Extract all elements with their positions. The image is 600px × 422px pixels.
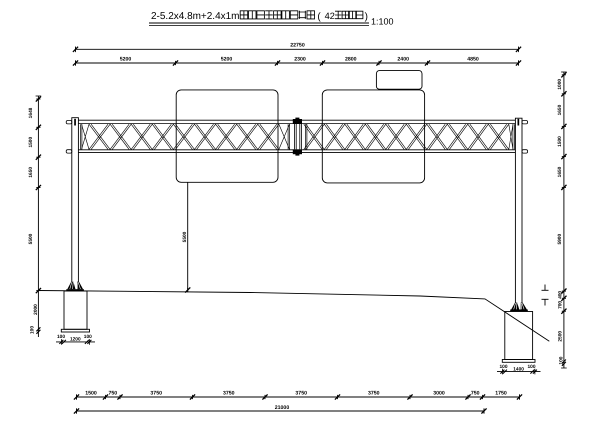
- svg-text:1400: 1400: [513, 366, 524, 372]
- svg-text:2-5.2x4.8m+2.4x1m: 2-5.2x4.8m+2.4x1m: [151, 11, 240, 22]
- svg-text:100: 100: [57, 334, 65, 340]
- svg-text:100: 100: [30, 326, 36, 334]
- svg-text:3750: 3750: [295, 391, 307, 397]
- svg-text:21000: 21000: [275, 405, 290, 411]
- svg-text:5500: 5500: [182, 231, 188, 242]
- svg-text:2500: 2500: [558, 331, 564, 342]
- svg-text:): ): [365, 11, 368, 22]
- svg-text:3750: 3750: [150, 391, 162, 397]
- svg-text:1650: 1650: [557, 104, 563, 115]
- svg-text:3000: 3000: [433, 391, 445, 397]
- svg-text:100: 100: [559, 356, 565, 364]
- svg-text:4850: 4850: [467, 57, 479, 63]
- svg-text:1500: 1500: [85, 391, 97, 397]
- svg-text:400: 400: [558, 291, 564, 299]
- svg-text:3750: 3750: [368, 391, 380, 397]
- svg-text:1648: 1648: [28, 107, 34, 118]
- svg-text:42: 42: [325, 11, 335, 21]
- svg-text:2000: 2000: [33, 304, 39, 315]
- svg-text:1500: 1500: [28, 137, 34, 148]
- svg-text:100: 100: [84, 334, 92, 340]
- svg-text:5200: 5200: [120, 57, 132, 63]
- svg-text:1750: 1750: [495, 391, 507, 397]
- svg-text:5500: 5500: [28, 233, 34, 244]
- svg-text:1500: 1500: [557, 136, 563, 147]
- svg-text:5200: 5200: [221, 57, 233, 63]
- svg-text:2400: 2400: [397, 57, 409, 63]
- svg-text:100: 100: [499, 364, 507, 370]
- svg-text:2800: 2800: [345, 57, 357, 63]
- svg-text:3750: 3750: [223, 391, 235, 397]
- svg-text:750: 750: [108, 391, 117, 397]
- svg-text:100: 100: [527, 364, 535, 370]
- svg-text:5900: 5900: [557, 234, 563, 245]
- svg-text:1650: 1650: [28, 167, 34, 178]
- svg-text:22750: 22750: [290, 42, 305, 48]
- svg-text:1200: 1200: [70, 337, 81, 343]
- svg-text:1650: 1650: [557, 166, 563, 177]
- svg-text:700: 700: [558, 301, 564, 309]
- svg-text:1000: 1000: [557, 79, 563, 90]
- svg-text:1:100: 1:100: [371, 17, 394, 27]
- svg-text:2300: 2300: [294, 57, 306, 63]
- svg-text:750: 750: [471, 391, 480, 397]
